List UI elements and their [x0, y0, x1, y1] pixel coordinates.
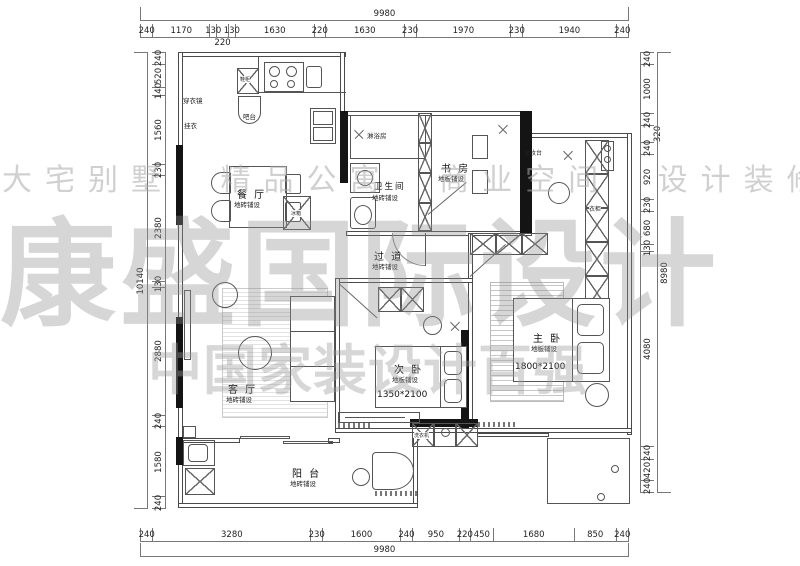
- dim-segment: 240: [141, 528, 153, 541]
- bedroom2-floor-label: 地板铺设: [392, 374, 418, 384]
- living-floor-label: 地砖铺设: [226, 394, 252, 404]
- bathroom-floor-label: 地砖铺设: [372, 192, 398, 202]
- dim-segment: 240: [152, 497, 165, 509]
- wall-black-kitchen-bath: [340, 111, 348, 183]
- dim-value: 950: [428, 530, 444, 540]
- toilet-bowl: [354, 205, 372, 225]
- dim-value: 2380: [154, 217, 164, 239]
- fridge-label: 冰箱: [291, 210, 301, 217]
- corridor-floor-label: 地砖铺设: [372, 261, 398, 271]
- dim-value: 8980: [660, 262, 670, 284]
- dim-segment: 240: [641, 447, 654, 459]
- platform-drain: [597, 493, 605, 501]
- dim-left-total: 10140: [134, 52, 148, 509]
- dim-left-segments: 2405201401560230238013028802401580240: [152, 52, 166, 509]
- tv-cabinet: [184, 290, 191, 360]
- sofa-cushion-line: [290, 331, 335, 332]
- dim-segment: 1580: [152, 427, 165, 497]
- study-door-leaf: [428, 182, 467, 215]
- dim-top-total: 9980: [140, 7, 629, 21]
- dim-value: 4080: [643, 338, 653, 360]
- dim-segment: 230: [405, 24, 417, 37]
- dim-value: 10140: [136, 267, 146, 294]
- bedroom2-bed-headboard-line: [440, 346, 441, 408]
- sliding-door-panel: [283, 441, 333, 444]
- balcony-cabinet: [185, 468, 215, 495]
- dining-chair: [285, 174, 301, 194]
- dim-value: 520: [154, 68, 164, 84]
- dim-segment: 240: [641, 53, 654, 65]
- dim-segment: 240: [401, 528, 413, 541]
- dim-segment: 240: [641, 143, 654, 155]
- dim-segment: 240: [141, 24, 153, 37]
- dim-segment: 450: [471, 528, 494, 541]
- balcony-tap-box: [183, 426, 196, 438]
- burner: [270, 80, 278, 88]
- dim-segment: 220: [460, 528, 472, 541]
- dim-right-total: 8980: [657, 52, 671, 493]
- sliding-door-panel: [240, 436, 290, 439]
- dining-chair: [211, 200, 231, 222]
- dim-segment: 1000: [641, 65, 654, 114]
- dim-segment: 9980: [141, 7, 629, 20]
- dressing-mirror-label: 穿衣镜: [183, 95, 203, 105]
- dim-value: 850: [587, 530, 603, 540]
- wall-kitchen-right-upper: [340, 52, 345, 114]
- wall-balcony-bottom-window: [178, 503, 418, 508]
- dim-value: 240: [398, 530, 414, 540]
- bedroom2-door-leaf: [340, 284, 378, 318]
- dim-value: 240: [643, 51, 653, 67]
- dim-segment: 1560: [152, 96, 165, 165]
- dim-value: 1680: [523, 530, 545, 540]
- coffee-table: [238, 336, 272, 370]
- bar-counter-label: 吧台: [243, 111, 256, 121]
- bedroom2-desk-line: [345, 417, 405, 418]
- wall-right: [627, 133, 632, 435]
- dim-value: 3280: [221, 530, 243, 540]
- master-wardrobe-cell: [496, 233, 522, 255]
- master-wardrobe-cell: [470, 233, 496, 255]
- dim-value: 240: [643, 445, 653, 461]
- study-floor-label: 地板铺设: [438, 173, 464, 183]
- dim-segment: 130: [210, 24, 217, 37]
- wall-platform-top: [477, 433, 549, 437]
- dim-value: 2880: [154, 341, 164, 363]
- wall-black-study-right: [520, 111, 532, 233]
- dim-value: 9980: [374, 9, 396, 19]
- wall-top-left: [178, 52, 346, 57]
- burner: [286, 66, 297, 77]
- washbasin: [357, 170, 373, 186]
- pillow: [577, 304, 604, 336]
- dim-segment: 1630: [236, 24, 315, 37]
- dim-segment: 950: [413, 528, 459, 541]
- dim-value: 1630: [354, 26, 376, 36]
- dim-value: 220: [214, 38, 230, 48]
- wardrobe-cell: [585, 242, 609, 276]
- kitchen-sink-bowl: [313, 111, 333, 125]
- dresser-stool: [548, 182, 570, 204]
- dim-value: 1940: [559, 26, 581, 36]
- pillow: [577, 342, 604, 374]
- dim-segment: 130: [152, 282, 165, 289]
- platform-drain: [611, 465, 619, 473]
- wall-black-left-lower: [176, 437, 183, 465]
- master-side-table: [585, 383, 609, 407]
- dim-value: 240: [643, 140, 653, 156]
- dim-segment: 230: [641, 200, 654, 212]
- bathroom-label: 卫生间: [374, 180, 406, 192]
- shaft-cell: [418, 113, 432, 143]
- dim-segment: 2380: [152, 176, 165, 281]
- dim-segment: 1680: [494, 528, 575, 541]
- dim-value: 240: [154, 495, 164, 511]
- dim-value: 240: [643, 478, 653, 494]
- dim-value: 9980: [374, 545, 396, 555]
- dim-segment: 8980: [658, 53, 671, 493]
- sofa: [290, 296, 335, 402]
- dim-value: 1600: [351, 530, 373, 540]
- wall-black-left-mid: [176, 317, 183, 408]
- washing-machine-label: 洗衣机: [414, 432, 429, 439]
- wardrobe-cell: [585, 174, 609, 208]
- master-bed-headboard-line: [572, 298, 573, 382]
- dim-segment: 130: [641, 245, 654, 252]
- burner: [287, 80, 295, 88]
- dim-segment: 230: [311, 528, 323, 541]
- dim-segment: 240: [641, 114, 654, 126]
- shower-room-label: 淋浴房: [367, 130, 387, 140]
- balcony-plant-hatch: [375, 491, 417, 496]
- balcony-sink: [188, 444, 208, 462]
- dim-segment: 850: [575, 528, 617, 541]
- dim-bottom-segments: 240328023016002409502204501680850240: [140, 528, 629, 542]
- shaft-cell: [418, 173, 432, 203]
- wardrobe-label: 衣柜: [589, 204, 601, 213]
- bedroom2-table: [423, 316, 442, 335]
- master-wardrobe-cell: [522, 233, 548, 255]
- dim-value: 1580: [154, 451, 164, 473]
- dim-segment: 10140: [134, 53, 147, 509]
- burner: [269, 66, 280, 77]
- dim-segment: 1600: [323, 528, 400, 541]
- dim-value: 680: [643, 220, 653, 236]
- dim-segment: 1630: [326, 24, 405, 37]
- wardrobe-cell: [585, 208, 609, 242]
- laundry-cabinet: [456, 423, 478, 447]
- study-cabinet: [472, 170, 488, 194]
- dim-value: 240: [643, 112, 653, 128]
- shaft-cell: [418, 143, 432, 173]
- dim-segment: 240: [617, 24, 629, 37]
- kitchen-sink-bowl: [313, 127, 333, 141]
- sofa-cushion-line: [290, 366, 335, 367]
- dim-segment: 240: [152, 416, 165, 428]
- bedroom2-wardrobe-cell: [378, 287, 401, 312]
- dim-segment: 240: [617, 528, 629, 541]
- kitchen-counter-edge: [258, 92, 346, 93]
- pillow: [444, 379, 462, 403]
- dim-value: 1170: [170, 26, 192, 36]
- balcony-floor-label: 地砖铺设: [290, 478, 316, 488]
- dim-value: 240: [139, 530, 155, 540]
- dim-value: 1970: [453, 26, 475, 36]
- dim-segment: 140: [152, 88, 165, 95]
- shoe-cabinet-label: 鞋柜: [240, 76, 250, 83]
- ceiling-light-icon: [560, 147, 577, 164]
- master-bed-size: 1800*2100: [515, 362, 565, 372]
- dim-right-segments: 2401000240320240920230680130408024042024…: [640, 52, 654, 493]
- study-desk: [472, 135, 488, 159]
- bathroom-door-leaf: [425, 233, 426, 266]
- cabinet-knob: [604, 145, 611, 152]
- master-window-curtain: [478, 422, 516, 427]
- bedroom2-window-curtain: [338, 423, 372, 428]
- kitchen-sink-top: [306, 66, 322, 88]
- dim-bottom-total: 9980: [140, 543, 629, 557]
- dim-segment: 1970: [417, 24, 512, 37]
- wall-top-right: [530, 133, 632, 138]
- dim-segment: 230: [152, 165, 165, 176]
- dim-value: 420: [643, 461, 653, 477]
- dim-value: 1000: [643, 78, 653, 100]
- dim-value: 450: [474, 530, 490, 540]
- wall-bedroom2-left: [335, 278, 340, 433]
- dining-chair: [211, 172, 231, 194]
- dim-value: 920: [643, 169, 653, 185]
- side-table: [212, 282, 238, 308]
- dim-value: 1560: [154, 119, 164, 141]
- wall-bedroom2-top: [335, 278, 473, 283]
- ceiling-light-icon: [495, 121, 512, 138]
- shaft-cell: [418, 203, 432, 231]
- dim-segment: 920: [641, 155, 654, 200]
- dim-segment: 240: [641, 481, 654, 493]
- dim-segment: 2880: [152, 288, 165, 415]
- dining-room-floor-label: 地砖铺设: [234, 199, 260, 209]
- dim-value: 240: [139, 26, 155, 36]
- dim-top-segments: 2401170130220130163022016302301970230194…: [140, 24, 629, 38]
- coat-hook-label: 挂衣: [184, 120, 197, 130]
- dim-segment: 4080: [641, 252, 654, 447]
- dim-segment: 9980: [141, 543, 629, 556]
- dim-value: 240: [614, 530, 630, 540]
- dim-segment: 3280: [153, 528, 311, 541]
- bedroom2-bed-size: 1350*2100: [377, 390, 427, 400]
- wall-black-left-upper: [176, 145, 183, 225]
- dim-segment: 240: [152, 53, 165, 65]
- dim-segment: 230: [511, 24, 523, 37]
- bedroom2-wardrobe-cell: [401, 287, 424, 312]
- cabinet-knob: [604, 156, 611, 163]
- dresser-label: 化妆台: [524, 148, 542, 157]
- pillow: [444, 351, 462, 375]
- master-floor-label: 地板铺设: [531, 343, 557, 353]
- laundry-drain: [441, 428, 450, 437]
- balcony-side-table: [352, 468, 370, 486]
- dim-segment: 220: [315, 24, 326, 37]
- dim-value: 1630: [264, 26, 286, 36]
- kitchen-counter-edge: [258, 57, 259, 92]
- floorplan-canvas: 大宅别墅 精品公寓 商业空间 设计装修 康盛国际设计 中国家装设计百强 9980…: [0, 0, 800, 566]
- dim-segment: 1940: [523, 24, 616, 37]
- dim-value: 240: [614, 26, 630, 36]
- lounge-chair: [372, 452, 414, 490]
- dim-segment: 1170: [153, 24, 210, 37]
- dim-segment: 130: [229, 24, 236, 37]
